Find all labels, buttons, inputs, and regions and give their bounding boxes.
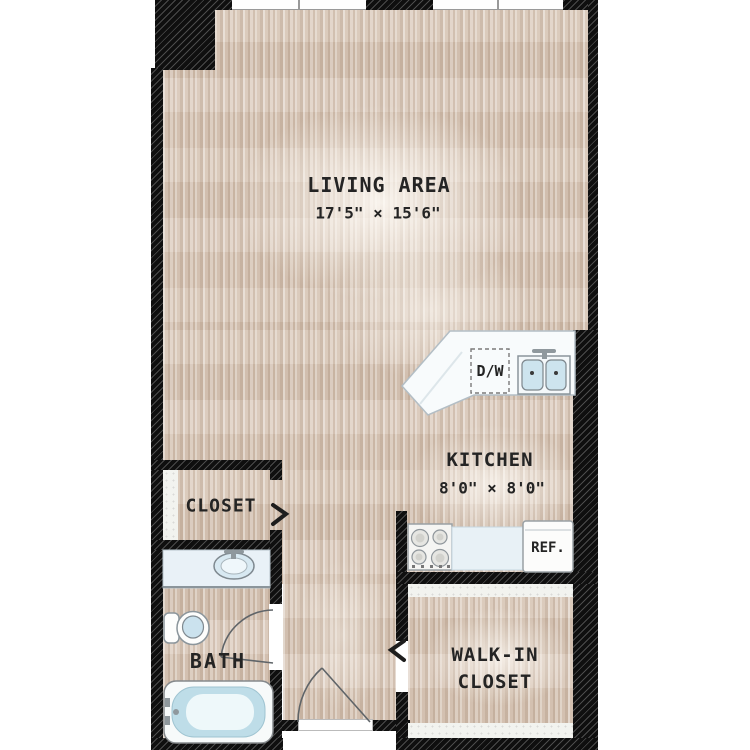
closet-label: CLOSET bbox=[185, 496, 256, 517]
window-icon bbox=[433, 0, 563, 10]
bath-label: BATH bbox=[190, 649, 246, 673]
dishwasher-label: D/W bbox=[476, 362, 503, 380]
refrigerator-label: REF. bbox=[531, 540, 565, 556]
bath-floor bbox=[163, 550, 282, 742]
bath-door-threshold bbox=[269, 604, 283, 670]
kitchen-dimensions: 8'0" × 8'0" bbox=[439, 479, 545, 498]
wall-segment bbox=[270, 460, 282, 480]
floor-plan: LIVING AREA 17'5" × 15'6" KITCHEN 8'0" ×… bbox=[0, 0, 750, 750]
wall-segment bbox=[270, 530, 282, 606]
wall-segment bbox=[151, 460, 278, 470]
wall-segment bbox=[151, 738, 283, 750]
wall-segment bbox=[573, 330, 598, 750]
walk-in-shelf-top bbox=[408, 584, 573, 597]
entry-door-threshold bbox=[298, 719, 373, 731]
closet-shelf bbox=[163, 470, 178, 540]
living-area-floor bbox=[163, 8, 588, 330]
walk-in-shelf-bottom bbox=[408, 723, 573, 738]
wall-segment bbox=[396, 738, 598, 750]
wall-segment bbox=[396, 572, 598, 584]
walk-in-closet-label-line2: CLOSET bbox=[458, 671, 533, 693]
wall-segment bbox=[151, 540, 282, 550]
wall-segment bbox=[282, 720, 298, 731]
living-area-label: LIVING AREA bbox=[307, 173, 450, 197]
walk-in-closet-label-line1: WALK-IN bbox=[451, 644, 538, 666]
living-area-dimensions: 17'5" × 15'6" bbox=[315, 204, 440, 223]
wall-segment bbox=[396, 584, 408, 641]
window-icon bbox=[232, 0, 366, 10]
kitchen-label: KITCHEN bbox=[446, 449, 533, 471]
window-mullion bbox=[298, 0, 300, 9]
wall-segment bbox=[155, 0, 215, 70]
wall-segment bbox=[151, 68, 163, 750]
hallway-floor bbox=[283, 584, 396, 720]
wall-segment bbox=[588, 0, 598, 332]
window-mullion bbox=[497, 0, 499, 9]
